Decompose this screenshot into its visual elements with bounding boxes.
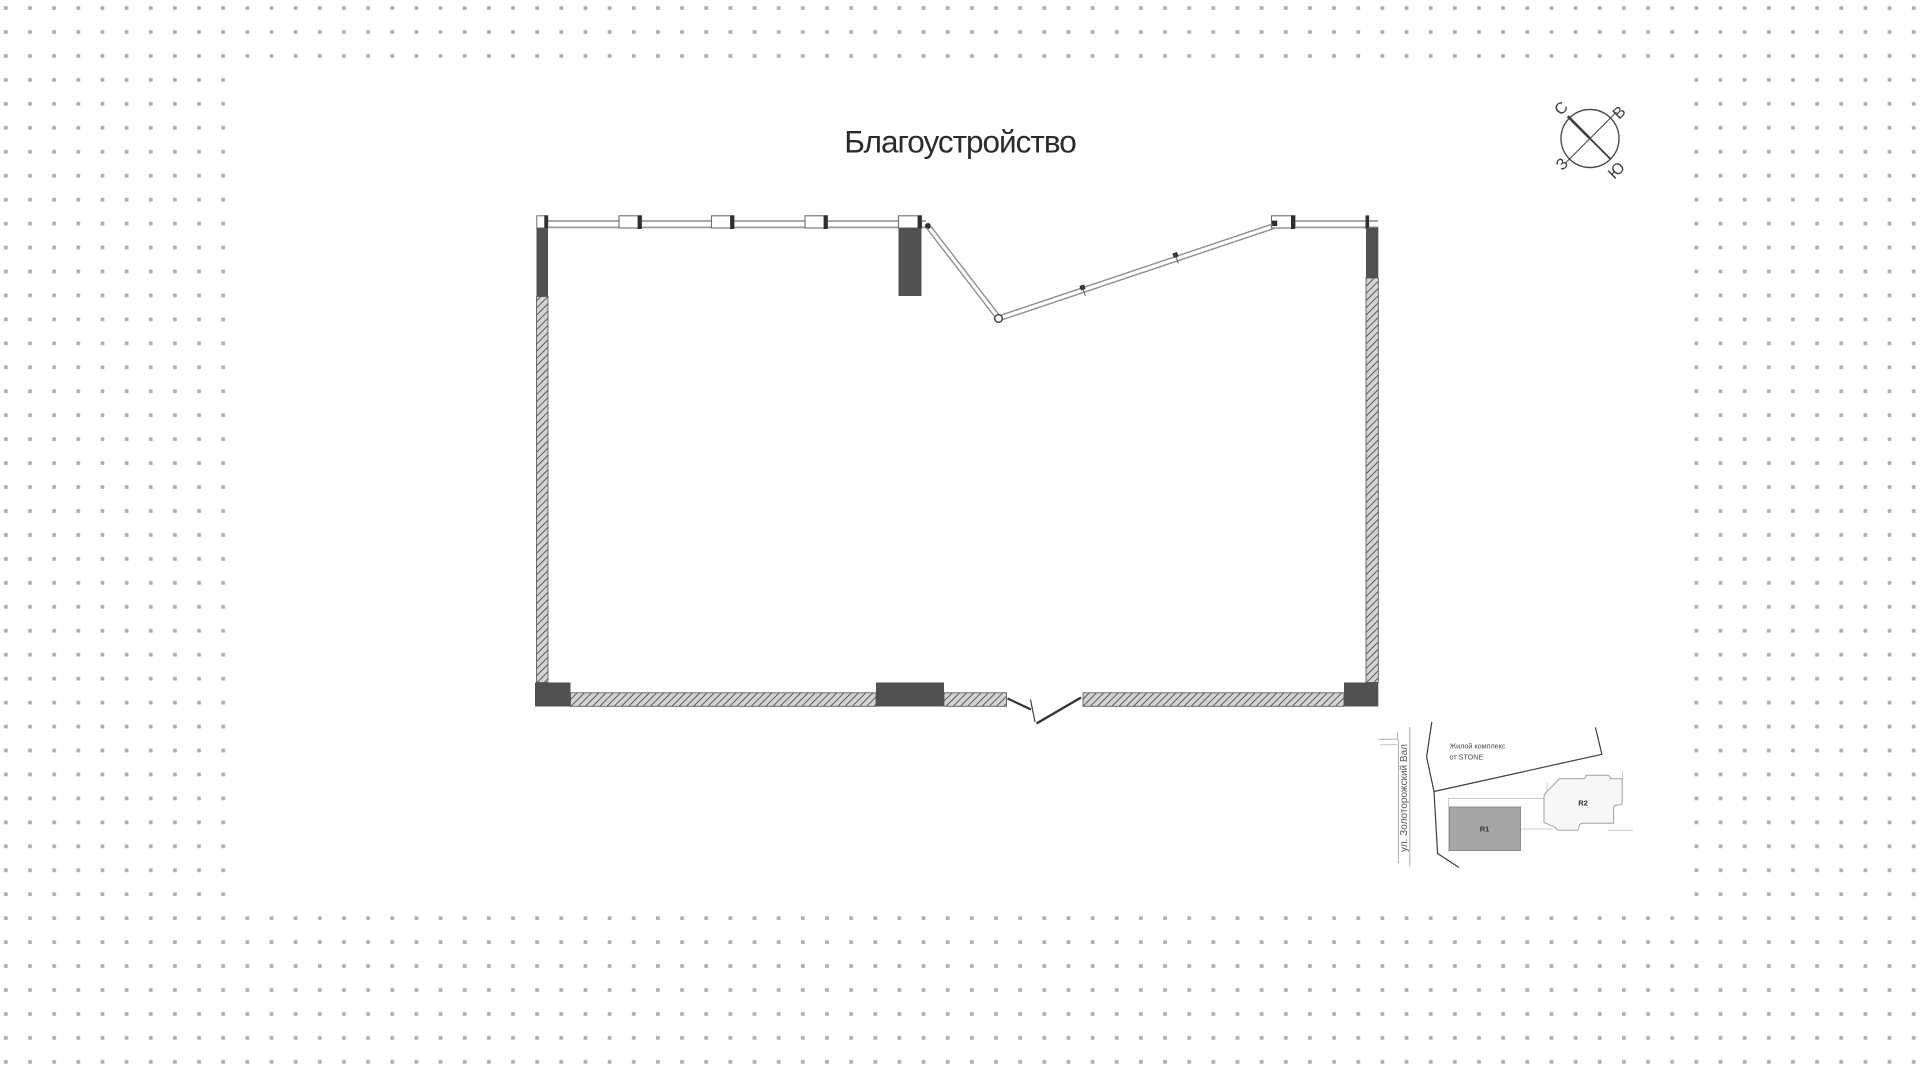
svg-text:ул. Золоторожский Вал: ул. Золоторожский Вал <box>1399 744 1410 852</box>
svg-text:Жилой комплекс: Жилой комплекс <box>1450 742 1506 751</box>
svg-text:Благоустройство: Благоустройство <box>844 124 1076 160</box>
svg-text:R2: R2 <box>1578 799 1588 808</box>
svg-text:R1: R1 <box>1480 825 1490 834</box>
svg-text:от STONE: от STONE <box>1450 753 1484 762</box>
